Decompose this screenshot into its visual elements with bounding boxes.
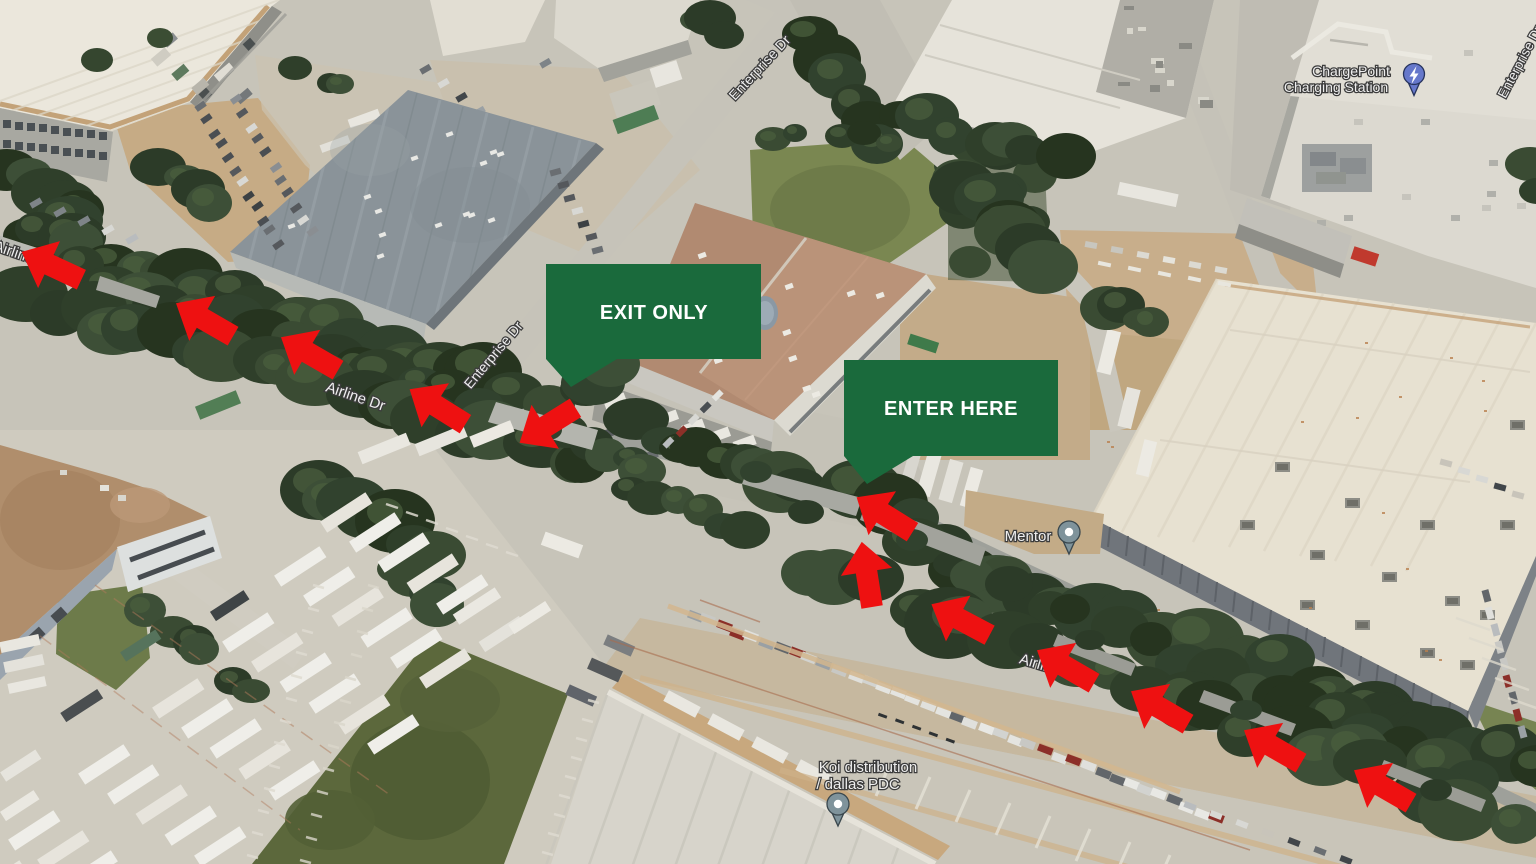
svg-text:ENTER HERE: ENTER HERE bbox=[884, 398, 1018, 420]
svg-text:Mentor: Mentor bbox=[1005, 528, 1052, 545]
svg-text:Koi distribution: Koi distribution bbox=[819, 759, 917, 776]
svg-text:ChargePoint: ChargePoint bbox=[1312, 63, 1390, 79]
svg-text:Charging Station: Charging Station bbox=[1284, 79, 1388, 95]
svg-text:EXIT ONLY: EXIT ONLY bbox=[600, 302, 708, 324]
svg-text:/ dallas PDC: / dallas PDC bbox=[816, 776, 900, 793]
